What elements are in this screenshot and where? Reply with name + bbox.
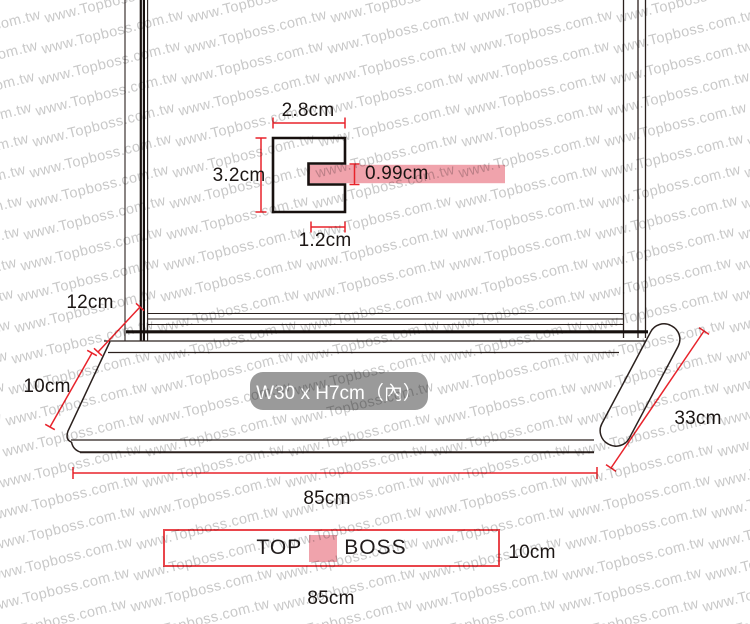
base-end-cap [595, 319, 685, 452]
dim-label-base-width: 85cm [303, 488, 350, 510]
insert-strip: TOP BOSS [163, 529, 500, 567]
dim-label-top-depth: 12cm [66, 292, 113, 314]
dim-label-slot-height: 0.99cm [365, 163, 429, 185]
insert-size-badge: W30 x H7cm（內） [250, 372, 428, 410]
dim-label-strip-width: 85cm [307, 588, 354, 610]
dim-label-side-depth: 33cm [674, 408, 721, 430]
brand-text-boss: BOSS [344, 536, 406, 560]
dim-label-side-height: 3.2cm [213, 165, 266, 187]
right-post [624, 0, 646, 338]
dim-label-slope-depth: 10cm [23, 376, 70, 398]
left-post [125, 0, 148, 341]
panel-bottom-rails [126, 314, 648, 332]
brand-text-top: TOP [256, 536, 302, 560]
product-spec-diagram: 2.8cm 3.2cm 1.2cm 0.99cm 12cm 10cm 33cm … [0, 0, 750, 624]
brand-logo-square [309, 535, 337, 562]
insert-size-badge-text: W30 x H7cm（內） [256, 378, 422, 405]
dim-label-strip-height: 10cm [508, 542, 555, 564]
dim-label-notch-depth: 1.2cm [299, 230, 352, 252]
dim-label-top-width: 2.8cm [282, 100, 335, 122]
